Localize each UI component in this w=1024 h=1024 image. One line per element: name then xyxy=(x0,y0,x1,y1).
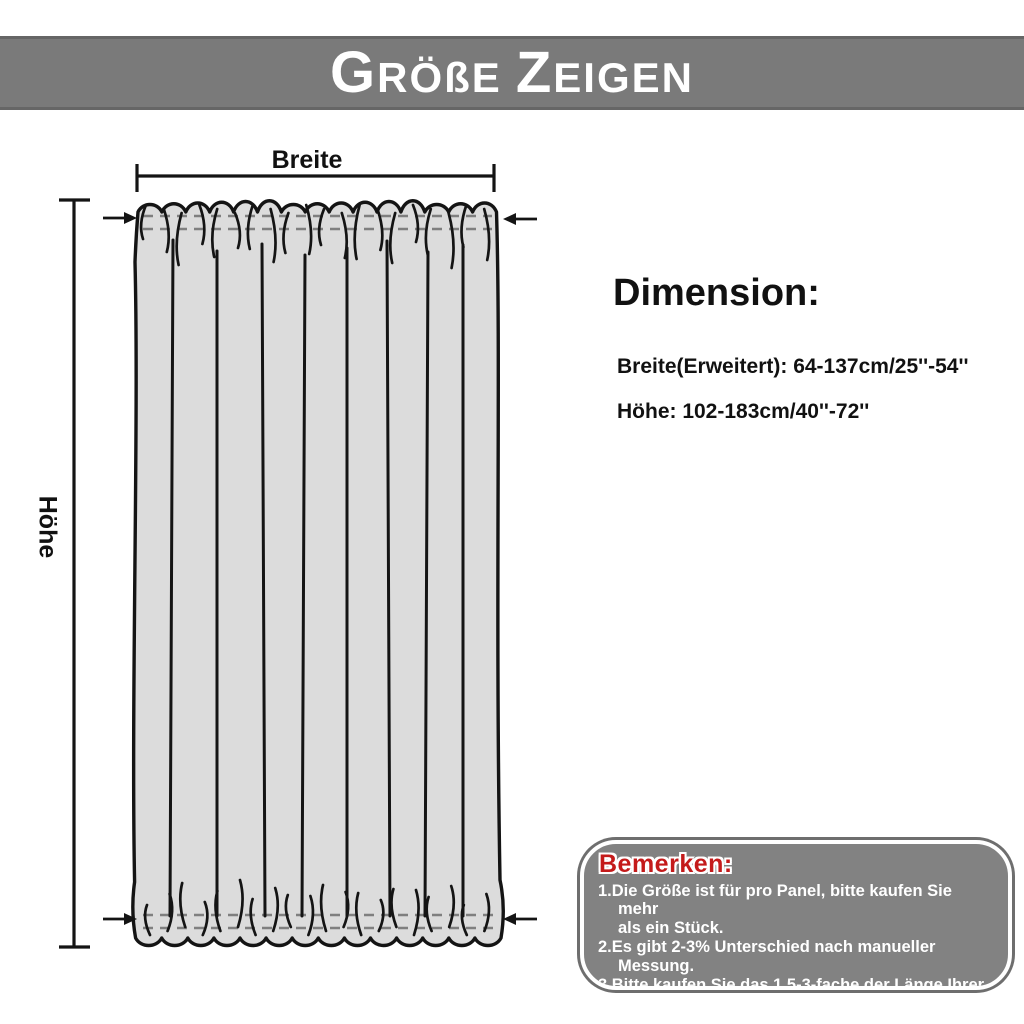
height-dimension-label: Höhe xyxy=(33,496,62,559)
arrow-left-icon xyxy=(503,213,537,225)
notes-list: 1.Die Größe ist für pro Panel, bitte kau… xyxy=(596,882,996,990)
note-item: 3.Bitte kaufen Sie das 1,5-3-fache der L… xyxy=(598,976,996,990)
note-item: 1.Die Größe ist für pro Panel, bitte kau… xyxy=(598,882,996,937)
notes-box: Bemerken: 1.Die Größe ist für pro Panel,… xyxy=(580,840,1012,990)
height-spec: Höhe: 102-183cm/40''-72'' xyxy=(617,396,1013,429)
arrow-left-icon xyxy=(503,913,537,925)
size-guide-page: GRÖßEZEIGEN xyxy=(0,0,1024,1024)
note-item: 2.Es gibt 2-3% Unterschied nach manuelle… xyxy=(598,938,996,975)
dimension-heading: Dimension: xyxy=(613,272,1013,315)
notes-heading: Bemerken: xyxy=(599,850,996,879)
height-dimension-line xyxy=(59,200,90,947)
curtain-fabric xyxy=(133,201,503,946)
arrow-right-icon xyxy=(103,212,137,224)
width-dimension-label: Breite xyxy=(127,146,487,175)
curtain-illustration xyxy=(133,201,503,946)
dimension-info: Dimension: Breite(Erweitert): 64-137cm/2… xyxy=(613,272,1013,440)
width-spec: Breite(Erweitert): 64-137cm/25''-54'' xyxy=(617,351,1013,384)
